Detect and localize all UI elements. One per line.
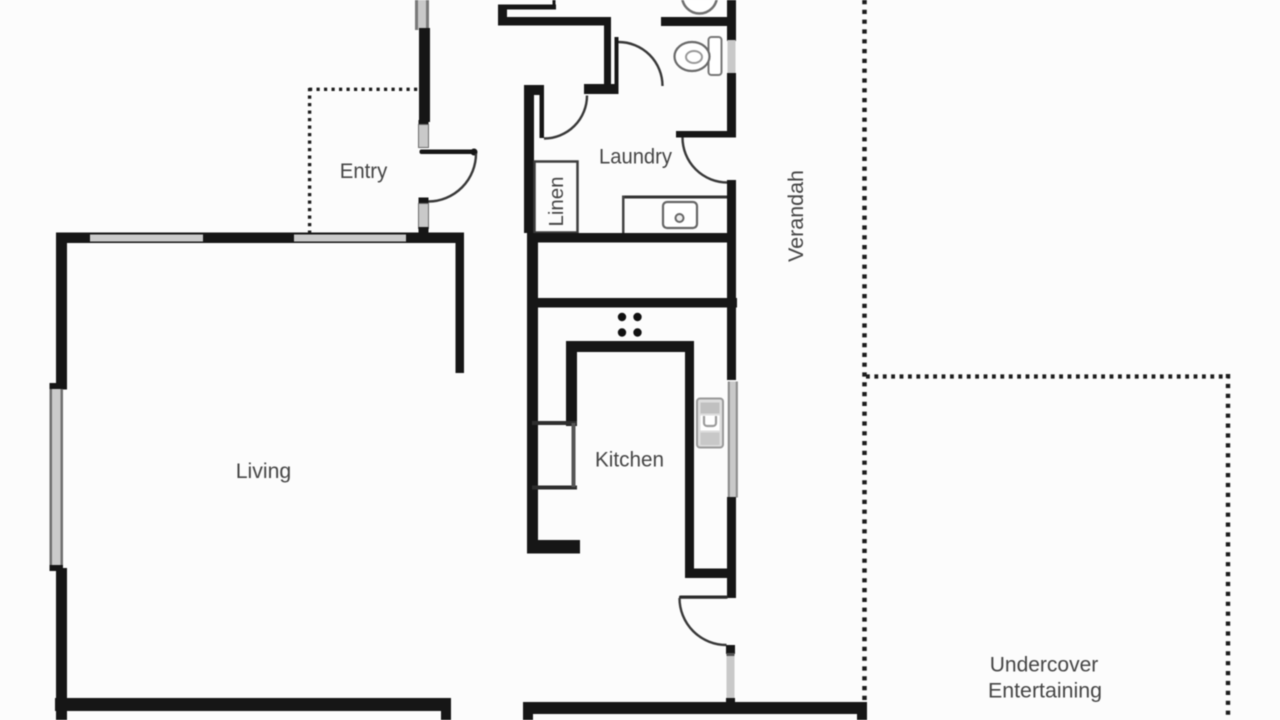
svg-text:Kitchen: Kitchen (595, 449, 664, 472)
svg-text:Undercover: Undercover (990, 654, 1099, 677)
svg-text:Laundry: Laundry (599, 146, 672, 169)
svg-text:Entry: Entry (340, 160, 388, 183)
svg-text:Entertaining: Entertaining (988, 680, 1102, 703)
svg-text:Linen: Linen (546, 177, 568, 227)
svg-text:Living: Living (236, 460, 292, 483)
svg-text:Verandah: Verandah (785, 170, 808, 262)
